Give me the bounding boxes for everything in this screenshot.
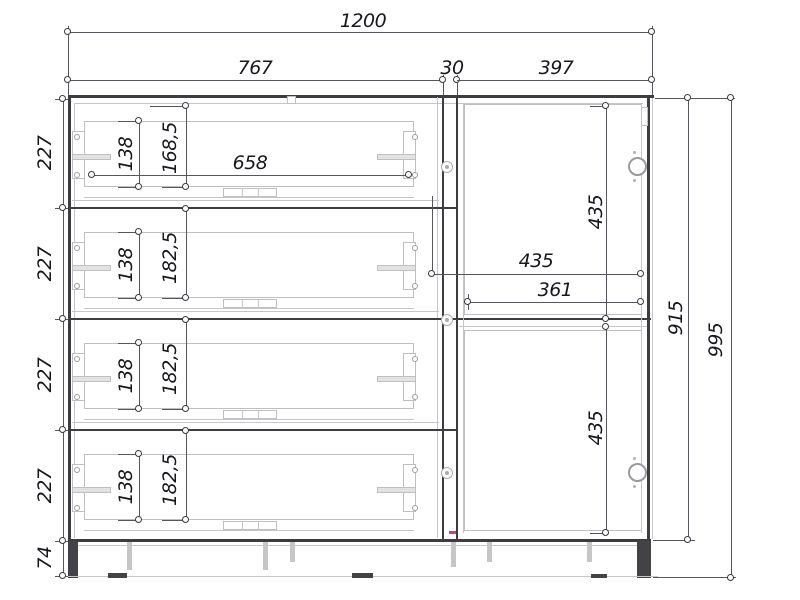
dim-endpoint [64,76,71,83]
dim-drawer-pitch-4: 227 [34,451,56,521]
door-split-line [459,326,647,327]
extension-line [652,26,653,95]
hinge-icon [445,471,449,475]
drawer-rail-left-1 [72,154,111,160]
dim-partition-width: 30 [417,57,487,79]
dim-endpoint [405,171,412,178]
dim-endpoint [182,316,189,323]
divider-3 [68,429,458,431]
dim-top-drawer-front-height: 168,5 [159,113,181,183]
drawer-clip-divider [258,299,259,308]
dim-endpoint [59,204,66,211]
drawer-rail-right-3 [377,376,416,382]
top-panel-edge [68,95,654,98]
dim-drawer-pitch-1: 227 [34,118,56,188]
dim-endpoint [59,537,66,544]
dim-endpoint [182,516,189,523]
dim-line-door-section [457,80,653,81]
top-rail-clip [287,96,296,104]
drawer-rail-left-2 [72,265,111,271]
dim-line-carcass-height [688,98,689,540]
drawer-clip-divider [258,410,259,419]
screw-icon [74,467,80,473]
hinge-icon [445,165,449,169]
screw-icon [412,245,418,251]
drawer-clip-divider [258,188,259,197]
plinth-leg [127,542,132,570]
drawer-clip-divider [242,410,243,419]
screw-icon [74,505,80,511]
extension-line [655,98,735,99]
dim-endpoint [648,76,655,83]
plinth-inner-line [78,545,637,546]
drawer-clip-4 [223,521,277,530]
drawer-rail-right-1 [377,154,416,160]
shelf-top-line-3 [72,422,439,423]
drawer-clip-divider [242,188,243,197]
plinth-leg [587,542,592,562]
screw-icon [412,356,418,362]
screw-icon [74,172,80,178]
door-handle-hole-icon [628,463,647,482]
drawer-clip-divider [258,521,259,530]
plinth-leg [290,542,295,562]
screw-icon [74,394,80,400]
dim-line-left-heights [63,99,64,576]
handle-screw-dot [633,179,636,182]
dim-door-section-width: 397 [521,57,591,79]
dim-endpoint [182,427,189,434]
handle-screw-dot [633,151,636,154]
dim-endpoint [59,572,66,579]
dim-endpoint [59,315,66,322]
screw-icon [412,467,418,473]
dim-door-height-lower: 435 [585,393,607,463]
screw-icon [412,283,418,289]
dim-endpoint [428,270,435,277]
dim-bar [150,106,186,107]
dim-line-door-width [432,274,641,275]
drawer-clip-1 [223,188,277,197]
dim-line-drawer-section [68,80,444,81]
dim-door-inner-width: 361 [520,279,590,301]
plinth-left-panel [68,541,78,578]
plinth-leg [263,542,268,570]
dim-drawer-section-width: 767 [220,57,290,79]
dim-drawer-box-height-1: 138 [115,119,137,189]
drawer-rail-line-3 [84,419,414,420]
dim-line [139,454,140,520]
screw-icon [74,134,80,140]
dim-line [139,121,140,187]
accent-mark [449,531,456,534]
dim-line [186,320,187,409]
foot [591,574,607,578]
bottom-panel-edge [68,539,651,542]
dim-endpoint [182,102,189,109]
extension-line [653,577,736,578]
dim-drawer-front-height-4: 182,5 [159,445,181,515]
dim-endpoint [602,315,609,322]
dim-endpoint [648,28,655,35]
divider-2 [68,318,651,320]
dim-drawer-box-height-3: 138 [115,341,137,411]
door-handle-hole-icon [628,157,647,176]
dim-endpoint [637,298,644,305]
plinth-leg [451,542,456,567]
screw-icon [412,172,418,178]
right-outer-line [652,98,653,539]
extension-line [68,26,69,95]
dim-drawer-pitch-3: 227 [34,340,56,410]
drawer-clip-divider [242,299,243,308]
dim-line-drawer-box-width [92,175,409,176]
dim-drawer-box-width: 658 [215,152,285,174]
door-lower [464,330,642,531]
dim-endpoint [464,298,471,305]
dim-endpoint [637,270,644,277]
dim-drawer-front-height-2: 182,5 [159,223,181,293]
hinge-icon [445,318,449,322]
dim-line [139,232,140,298]
dim-line [186,431,187,520]
dim-endpoint [182,205,189,212]
technical-drawing-canvas: 1200 767 30 397 227 227 227 227 74 138 1… [0,0,800,600]
drawer-clip-3 [223,410,277,419]
dim-endpoint [602,529,609,536]
dim-overall-width: 1200 [328,10,398,32]
dim-drawer-pitch-2: 227 [34,229,56,299]
dim-endpoint [182,183,189,190]
dim-drawer-front-height-3: 182,5 [159,334,181,404]
dim-line-door-inner-width [468,302,641,303]
dim-endpoint [182,294,189,301]
dim-line [139,343,140,409]
dim-endpoint [64,28,71,35]
dim-endpoint [602,102,609,109]
screw-icon [74,245,80,251]
drawer-rail-line-4 [84,530,414,531]
drawer-rail-right-4 [377,487,416,493]
handle-screw-dot [633,485,636,488]
divider-1 [68,207,458,209]
dim-line-overall-width [68,32,653,33]
screw-icon [412,505,418,511]
door-left-line [463,103,464,533]
drawer-clip-divider [242,521,243,530]
dim-endpoint [727,574,734,581]
screw-icon [74,356,80,362]
dim-plinth-height: 74 [34,523,56,593]
screw-icon [74,283,80,289]
dim-endpoint [59,95,66,102]
foot [352,573,373,578]
screw-icon [412,394,418,400]
dim-door-height-upper: 435 [585,177,607,247]
dim-endpoint [727,94,734,101]
dim-line [186,209,187,298]
drawer-rail-left-4 [72,487,111,493]
drawer-clip-2 [223,299,277,308]
handle-screw-dot [633,457,636,460]
dim-drawer-box-height-4: 138 [115,452,137,522]
drawer-rail-left-3 [72,376,111,382]
dim-endpoint [59,426,66,433]
dim-overall-height: 995 [705,305,727,375]
extension-line [432,196,433,274]
dim-endpoint [182,405,189,412]
dim-line-overall-height [731,98,732,578]
dim-door-width: 435 [501,250,571,272]
drawer-rail-line-1 [84,197,414,198]
dim-endpoint [684,536,691,543]
foot [108,573,127,578]
shelf-top-line-2 [72,311,439,312]
door-hinge-plate [641,107,648,126]
dim-endpoint [602,323,609,330]
dim-endpoint [88,171,95,178]
plinth-leg [487,542,492,562]
plinth-right-panel [637,541,651,578]
drawer-rail-right-2 [377,265,416,271]
dim-drawer-box-height-2: 138 [115,230,137,300]
dim-endpoint [684,94,691,101]
dim-carcass-height: 915 [665,283,687,353]
screw-icon [412,134,418,140]
shelf-top-line-1 [72,200,439,201]
drawer-rail-line-2 [84,308,414,309]
